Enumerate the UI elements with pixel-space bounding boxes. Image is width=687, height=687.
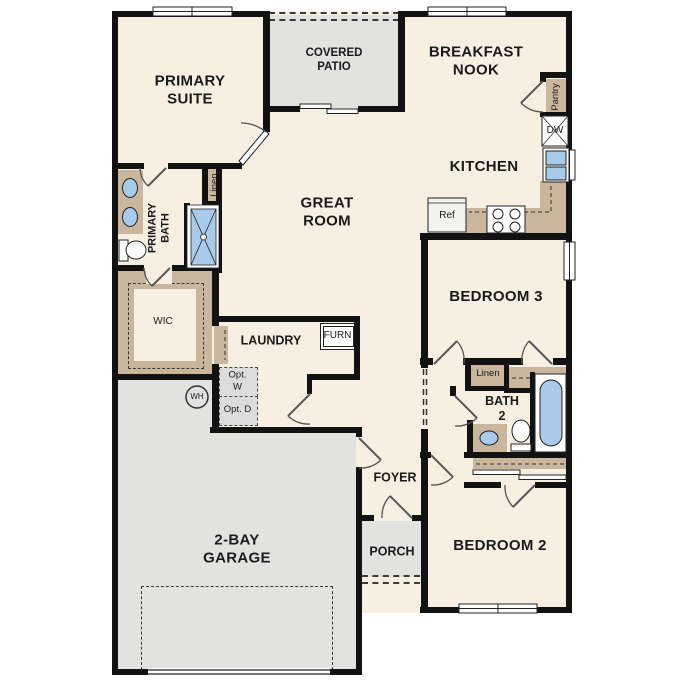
room-label-great-room: GREAT ROOM <box>291 195 363 232</box>
linen-label: Linen <box>476 368 499 380</box>
room-label-porch: PORCH <box>369 544 414 559</box>
room-label-bedroom2: BEDROOM 2 <box>445 537 555 555</box>
kitchen-sink-icon <box>543 148 569 182</box>
optional-washer-label: Opt. W <box>224 369 252 392</box>
room-label-garage: 2-BAY GARAGE <box>190 532 285 569</box>
room-label-primary-bath: PRIMARY BATH <box>147 193 174 263</box>
room-label-foyer: FOYER <box>373 470 416 485</box>
floor-plan: PRIMARY SUITE COVERED PATIO BREAKFAST NO… <box>0 0 687 687</box>
dishwasher-label: DW <box>547 125 564 137</box>
cased-opening <box>424 369 427 429</box>
room-label-laundry: LAUNDRY <box>241 333 302 348</box>
garage-door-opening <box>148 668 330 676</box>
toilet-icon <box>119 240 146 261</box>
stove-icon <box>487 206 525 233</box>
room-label-primary-suite: PRIMARY SUITE <box>143 73 238 110</box>
optional-dryer-label: Opt. D <box>224 404 252 416</box>
sliding-door <box>300 104 358 114</box>
linen-label: Linen <box>209 173 221 196</box>
door-leaf <box>239 130 269 165</box>
fixtures-doors-layer <box>0 0 687 687</box>
bathtub-icon <box>535 374 566 452</box>
water-heater-label: WH <box>190 392 203 402</box>
window <box>459 604 537 613</box>
room-label-bath2: BATH 2 <box>481 394 523 425</box>
room-label-covered-patio: COVERED PATIO <box>298 46 370 74</box>
closet-doors <box>473 470 566 480</box>
room-label-kitchen: KITCHEN <box>429 158 539 176</box>
pantry-label: Pantry <box>550 83 562 110</box>
furnace-label: FURN <box>324 329 352 341</box>
room-label-wic: WIC <box>153 316 172 328</box>
sink-icon <box>480 431 498 445</box>
window <box>428 7 506 16</box>
shower-icon <box>187 205 219 268</box>
window <box>153 7 232 16</box>
toilet-icon <box>511 420 531 451</box>
room-label-breakfast-nook: BREAKFAST NOOK <box>414 44 539 81</box>
room-label-bedroom3: BEDROOM 3 <box>441 288 551 306</box>
window <box>564 242 575 280</box>
sink-icon <box>123 179 138 227</box>
refrigerator-label: Ref <box>439 210 455 222</box>
